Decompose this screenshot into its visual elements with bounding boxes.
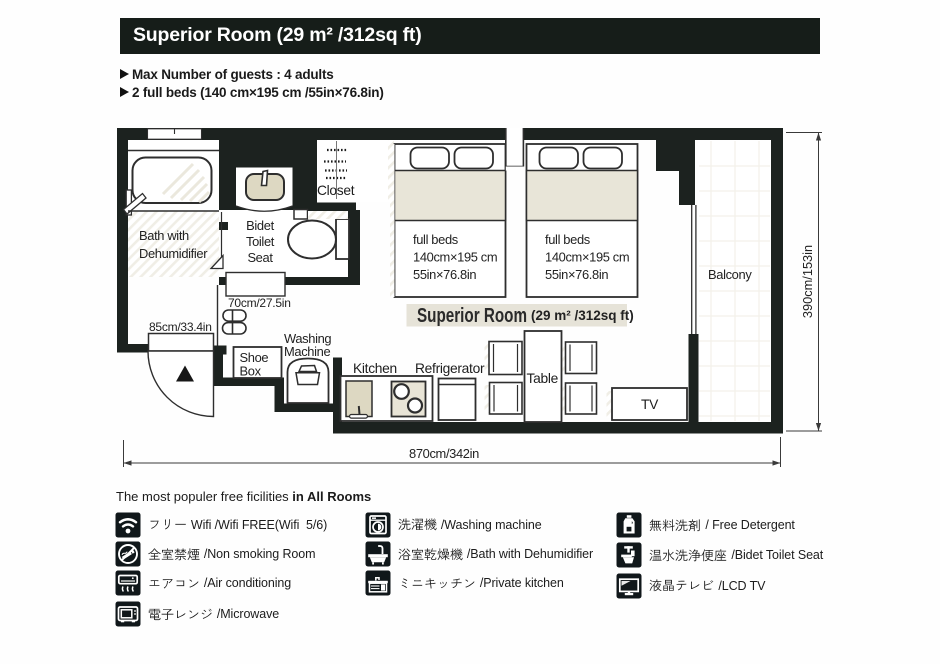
svg-text:55in×76.8in: 55in×76.8in: [545, 267, 608, 282]
svg-text:Superior Room: Superior Room: [417, 305, 527, 327]
svg-text:140cm×195 cm: 140cm×195 cm: [545, 250, 629, 265]
svg-text:Bath with: Bath with: [139, 228, 189, 243]
svg-text:TV: TV: [641, 397, 659, 412]
svg-text:Box: Box: [240, 364, 262, 379]
svg-text:Bidet: Bidet: [246, 218, 274, 233]
svg-text:390cm/153in: 390cm/153in: [800, 245, 815, 318]
svg-text:Seat: Seat: [247, 250, 273, 265]
svg-text:(29 m² /312sq ft): (29 m² /312sq ft): [531, 308, 634, 323]
svg-text:85cm/33.4in: 85cm/33.4in: [149, 320, 212, 334]
svg-text:Machine: Machine: [284, 344, 330, 359]
svg-text:full beds: full beds: [545, 232, 590, 247]
svg-text:140cm×195 cm: 140cm×195 cm: [413, 250, 497, 265]
svg-text:Dehumidifier: Dehumidifier: [139, 246, 208, 261]
svg-text:full beds: full beds: [413, 232, 458, 247]
svg-text:870cm/342in: 870cm/342in: [409, 446, 479, 461]
svg-text:70cm/27.5in: 70cm/27.5in: [228, 296, 291, 310]
svg-text:Balcony: Balcony: [708, 267, 752, 282]
svg-text:Kitchen: Kitchen: [353, 361, 397, 376]
svg-text:55in×76.8in: 55in×76.8in: [413, 267, 476, 282]
svg-text:Toilet: Toilet: [246, 234, 275, 249]
svg-text:Refrigerator: Refrigerator: [415, 361, 485, 376]
svg-text:Table: Table: [527, 371, 559, 386]
svg-text:Closet: Closet: [317, 183, 355, 198]
